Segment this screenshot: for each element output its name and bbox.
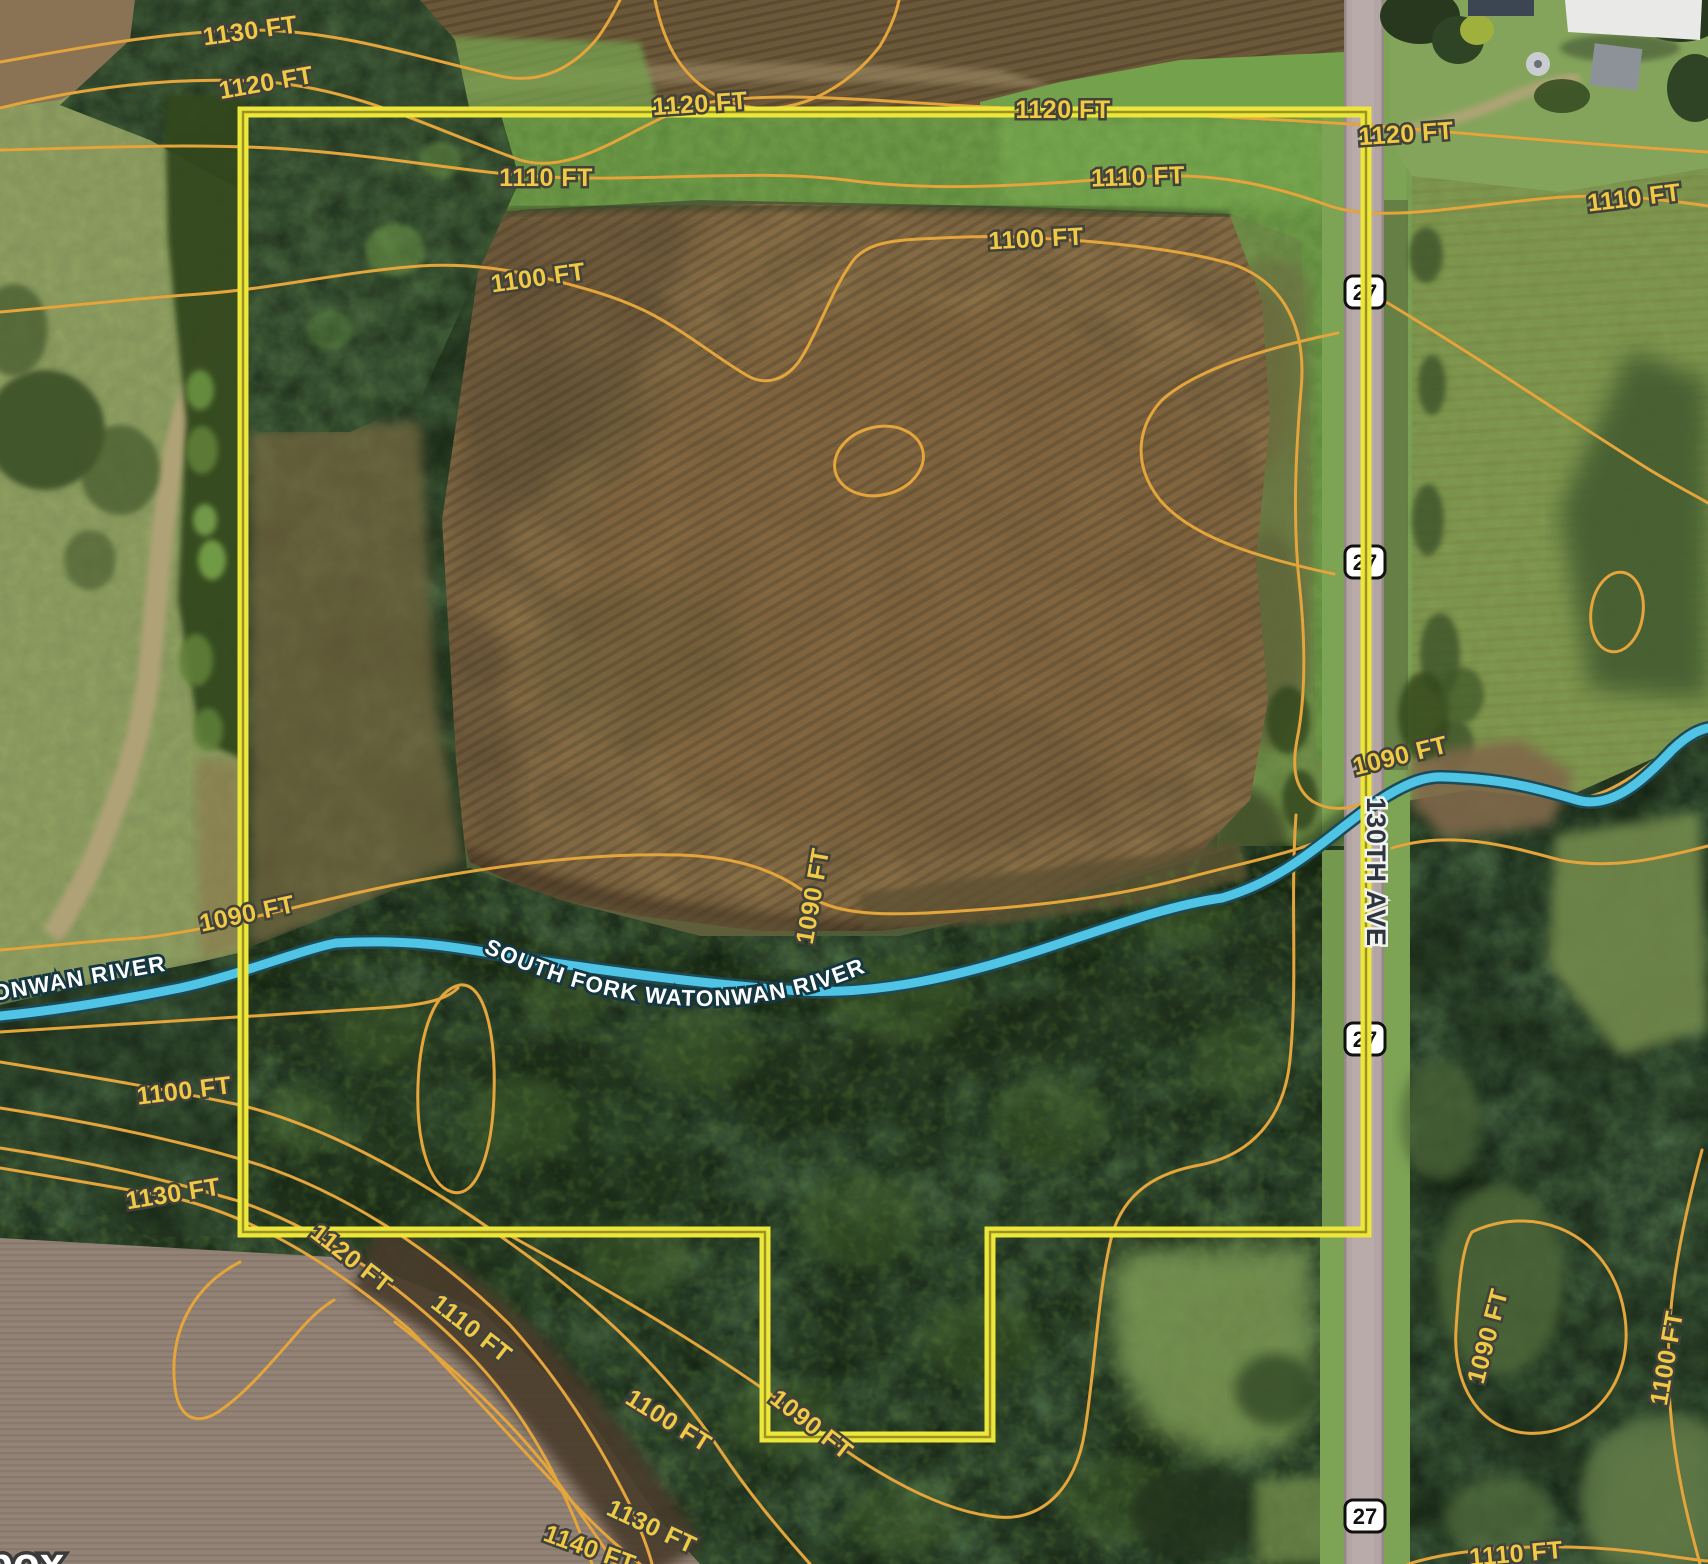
svg-text:130TH AVE: 130TH AVE	[1361, 797, 1391, 947]
svg-text:1120 FT: 1120 FT	[1015, 96, 1110, 124]
svg-text:box: box	[0, 1539, 65, 1564]
svg-text:1110 FT: 1110 FT	[1091, 161, 1186, 192]
svg-text:1110 FT: 1110 FT	[499, 164, 593, 192]
svg-text:1100 FT: 1100 FT	[988, 223, 1085, 256]
svg-text:27: 27	[1353, 1504, 1377, 1529]
